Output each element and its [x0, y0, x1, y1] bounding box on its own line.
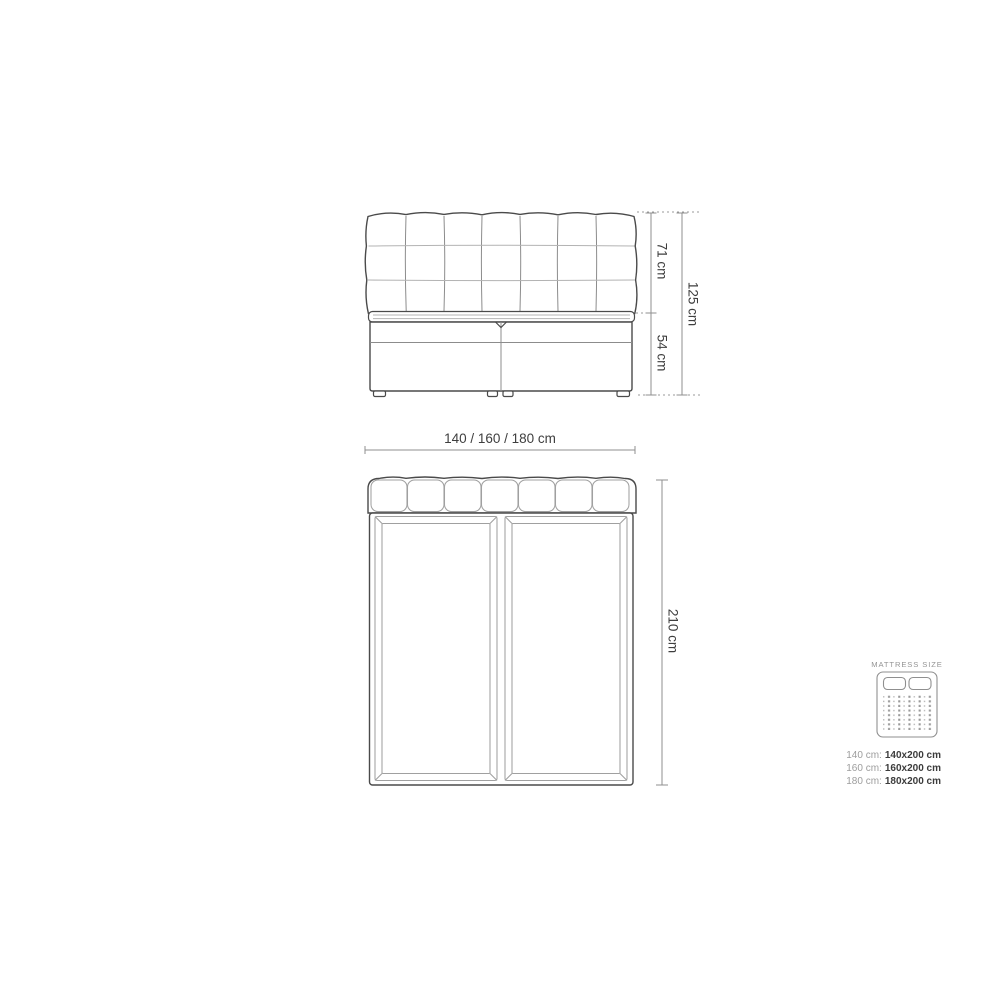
- legend-row-180-prefix: 180 cm:: [846, 776, 882, 787]
- dim-length-label: 210 cm: [666, 609, 681, 653]
- diagram-svg: 71 cm 54 cm 125 cm 140 / 160 / 180 cm: [0, 0, 1000, 1000]
- top-view: 140 / 160 / 180 cm: [365, 431, 681, 785]
- front-feet: [374, 391, 630, 397]
- mattress-icon-dots: [883, 694, 932, 733]
- top-bed-body-outline: [370, 513, 634, 785]
- legend-row-160: 160 cm:160x200 cm: [846, 763, 941, 774]
- front-dimension-inner: 71 cm 54 cm: [646, 213, 670, 395]
- legend-row-180: 180 cm:180x200 cm: [846, 776, 941, 787]
- front-dimension-outer: 125 cm: [677, 213, 701, 395]
- legend-row-140: 140 cm:140x200 cm: [846, 750, 941, 761]
- dim-base-height-label: 54 cm: [655, 335, 670, 372]
- legend-title: MATTRESS SIZE: [871, 660, 942, 669]
- dim-headboard-height-label: 71 cm: [655, 243, 670, 280]
- legend-row-180-value: 180x200 cm: [885, 776, 941, 787]
- front-base: [370, 322, 632, 391]
- mattress-icon: [877, 672, 937, 737]
- legend: MATTRESS SIZE 140 cm:140x200 cm 160 cm:1…: [846, 660, 942, 787]
- legend-row-140-prefix: 140 cm:: [846, 750, 882, 761]
- top-dimension-width: 140 / 160 / 180 cm: [365, 431, 635, 454]
- dim-total-height-label: 125 cm: [686, 282, 701, 326]
- front-mattress-strip: [369, 312, 635, 323]
- legend-row-160-value: 160x200 cm: [885, 763, 941, 774]
- dim-width-label: 140 / 160 / 180 cm: [444, 431, 556, 446]
- front-view: 71 cm 54 cm 125 cm: [365, 212, 701, 397]
- legend-rows: 140 cm:140x200 cm 160 cm:160x200 cm 180 …: [846, 750, 941, 787]
- bed-dimensions-diagram: 71 cm 54 cm 125 cm 140 / 160 / 180 cm: [0, 0, 1000, 1000]
- legend-row-160-prefix: 160 cm:: [846, 763, 882, 774]
- top-dimension-length: 210 cm: [656, 480, 681, 785]
- legend-row-140-value: 140x200 cm: [885, 750, 941, 761]
